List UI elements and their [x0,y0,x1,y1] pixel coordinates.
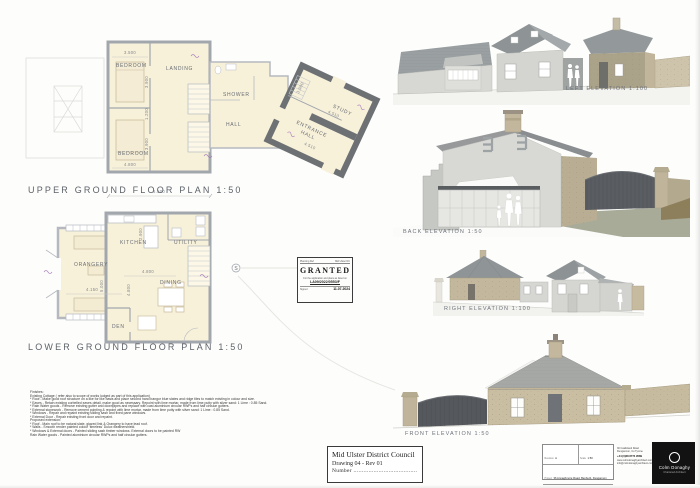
dim-left-lower: 3.900 [144,138,149,150]
dim-left-mid: 1.200 [144,108,149,120]
front-elevation-label: FRONT ELEVATION 1:50 [405,431,490,437]
architect-phone: +44 (0)28 8774 9589 [617,455,650,459]
page-edge-right [695,0,700,488]
room-label-utility: UTILITY [174,240,198,246]
stamp-date: 11.07.2024 [333,287,350,291]
room-label-shower: SHOWER [223,92,250,98]
back-elevation-label: BACK ELEVATION 1:50 [403,229,483,235]
architect-contact-block: 30 Coalisland Road Dungannon, Co Tyrone … [617,447,650,466]
cottage-hip-roof [446,256,524,278]
dim-orangery-h: 5.000 [99,280,104,292]
room-label-bedroom2: BEDROOM [118,151,149,157]
room-label-orangery: ORANGERY [74,262,108,268]
dim-top: 3.500 [124,50,136,55]
room-label-bedroom1: BEDROOM [116,63,147,69]
titleblock-revision: RevisionA [543,445,578,464]
dim-orangery-w: 4.150 [86,287,98,292]
room-label-dining: DINING [160,280,182,286]
front-elevation [393,328,690,432]
stamp-reference: LA09/2022/0553/F [300,280,350,284]
logo-ring-icon [669,452,680,463]
upper-plan-title: UPPER GROUND FLOOR PLAN 1:50 [28,185,243,195]
front-chimney [549,342,562,358]
council-drawing-rev: Drawing 04 - Rev 01 [332,461,418,467]
titleblock-scale: Scale1:50 [578,445,614,464]
stamp-signed-label: Signed [300,288,307,291]
stamp-header-right: Mid Ulster DC [335,260,350,263]
left-elevation-label: LEFT ELEVATION 1:100 [566,86,648,92]
right-elevation-label: RIGHT ELEVATION 1:100 [444,306,531,312]
dim-dining-h: 4.800 [126,284,131,296]
glazed-screen [438,190,540,227]
council-approval-box: Mid Ulster District Council Drawing 04 -… [327,446,423,483]
council-name: Mid Ulster District Council [332,450,418,459]
front-door [548,394,562,422]
planning-granted-stamp: Planning Ref Mid Ulster DC GRANTED For t… [297,257,353,303]
room-label-hall: HALL [226,122,241,128]
chimney [505,112,521,132]
dim-bottom: 4.800 [124,162,136,167]
council-number-line: Number .................................… [332,468,418,474]
architect-email: info@colmdonaghyarchitect.com [617,462,650,465]
stamp-status: GRANTED [300,266,350,275]
dim-left-upper: 3.900 [144,76,149,88]
drawing-titleblock: RevisionA Scale1:50 Project36 Annaghmore… [542,444,614,480]
architect-address-2: Dungannon, Co Tyrone [617,450,650,453]
dim-kitchen-h: 2.900 [138,228,143,240]
lower-plan-title: LOWER GROUND FLOOR PLAN 1:50 [28,342,245,352]
upper-floor-plan: STUDY 4.510 ENTRANCE HALL 4.510 3.900 BE… [18,36,383,206]
architect-name: Colm Donaghy [659,465,690,470]
right-cottage-roof [583,28,653,54]
architect-logo: Colm Donaghy Chartered Architect [652,442,697,484]
orangery-roof-outline [26,58,104,158]
titleblock-project: Project36 Annaghmore Road, Benburb, Dung… [543,465,613,484]
drawing-sheet: STUDY 4.510 ENTRANCE HALL 4.510 3.900 BE… [0,0,700,488]
stamp-header-left: Planning Ref [300,260,314,263]
note-line: Rain Water goods - Painted aluminium cir… [30,434,352,438]
room-label-den: DEN [112,324,125,330]
architect-subtitle: Chartered Architect [663,471,685,474]
finishes-notes: Finishes:Existing Cottage ( refer also t… [30,391,352,437]
back-elevation [393,106,690,237]
dim-dining-w: 4.800 [142,269,154,274]
room-label-landing: LANDING [166,66,193,72]
